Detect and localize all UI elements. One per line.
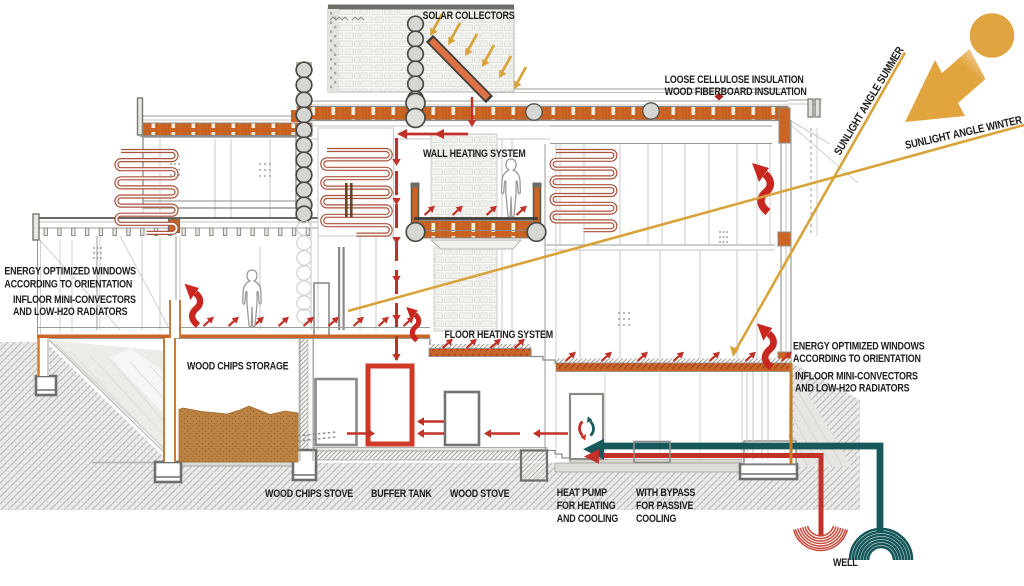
svg-text:AND LOW-H2O RADIATORS: AND LOW-H2O RADIATORS (13, 306, 128, 318)
svg-text:ACCORDING TO ORIENTATION: ACCORDING TO ORIENTATION (793, 354, 921, 366)
svg-text:WOOD FIBERBOARD INSULATION: WOOD FIBERBOARD INSULATION (665, 86, 807, 98)
svg-text:WELL: WELL (833, 557, 858, 569)
svg-text:FOR PASSIVE: FOR PASSIVE (636, 500, 694, 512)
svg-text:INFLOOR MINI-CONVECTORS: INFLOOR MINI-CONVECTORS (13, 294, 136, 306)
svg-text:WITH BYPASS: WITH BYPASS (636, 487, 696, 499)
svg-text:FOR HEATING: FOR HEATING (557, 500, 616, 512)
svg-text:AND COOLING: AND COOLING (557, 513, 618, 525)
svg-text:WOOD CHIPS STOVE: WOOD CHIPS STOVE (265, 488, 354, 500)
svg-text:WALL HEATING SYSTEM: WALL HEATING SYSTEM (423, 148, 526, 160)
svg-text:INFLOOR MINI-CONVECTORS: INFLOOR MINI-CONVECTORS (795, 371, 918, 383)
svg-text:HEAT PUMP: HEAT PUMP (557, 487, 608, 499)
svg-text:AND LOW-H2O RADIATORS: AND LOW-H2O RADIATORS (795, 383, 910, 395)
svg-text:SOLAR COLLECTORS: SOLAR COLLECTORS (423, 10, 516, 22)
svg-text:WOOD CHIPS STORAGE: WOOD CHIPS STORAGE (187, 361, 289, 373)
svg-text:FLOOR HEATING SYSTEM: FLOOR HEATING SYSTEM (445, 329, 554, 341)
svg-text:WOOD STOVE: WOOD STOVE (450, 488, 510, 500)
svg-text:BUFFER TANK: BUFFER TANK (371, 488, 432, 500)
svg-text:ACCORDING TO ORIENTATION: ACCORDING TO ORIENTATION (4, 279, 132, 291)
svg-text:ENERGY OPTIMIZED WINDOWS: ENERGY OPTIMIZED WINDOWS (793, 341, 925, 353)
svg-text:ENERGY OPTIMIZED WINDOWS: ENERGY OPTIMIZED WINDOWS (4, 266, 136, 278)
svg-text:LOOSE CELLULOSE INSULATION: LOOSE CELLULOSE INSULATION (665, 74, 804, 86)
svg-text:COOLING: COOLING (636, 513, 676, 525)
